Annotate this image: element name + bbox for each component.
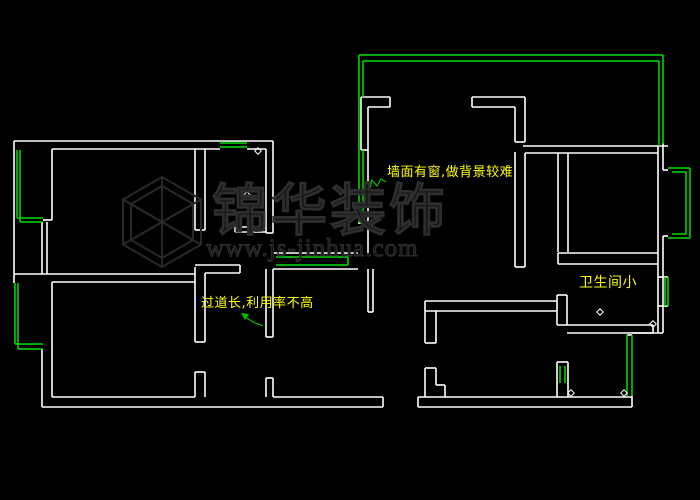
cad-floorplan-canvas: 锦华装饰 www.js-jinhua.com 墙面有窗,做背景较难 过道长,利用… (0, 0, 700, 500)
leader-line (244, 316, 263, 326)
annotation-corridor: 过道长,利用率不高 (201, 297, 314, 310)
annotation-wall-window: 墙面有窗,做背景较难 (387, 166, 513, 179)
annotation-bathroom: 卫生间小 (579, 276, 637, 290)
cube-logo-icon (112, 174, 212, 274)
point-marker-icon (597, 309, 604, 316)
watermark-url: www.js-jinhua.com (206, 236, 419, 261)
watermark-brand: 锦华装饰 (212, 184, 448, 240)
